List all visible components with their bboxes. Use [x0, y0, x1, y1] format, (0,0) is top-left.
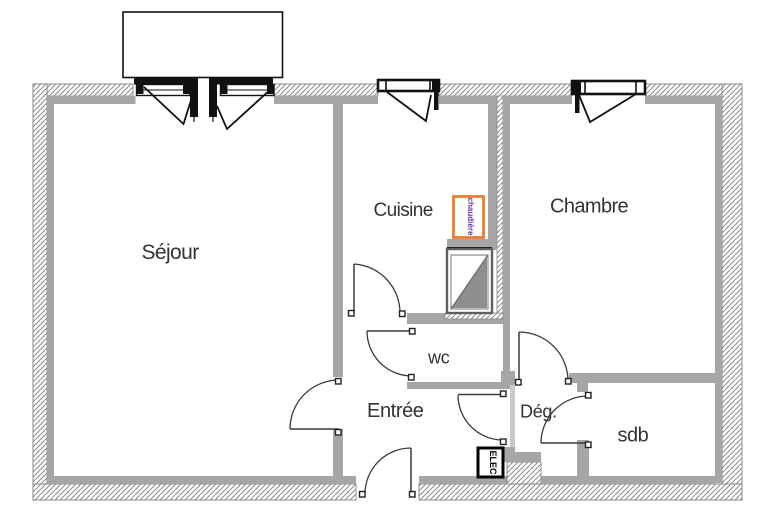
svg-text:wc: wc	[427, 348, 450, 368]
svg-text:sdb: sdb	[618, 425, 649, 447]
svg-text:chaudière: chaudière	[466, 198, 475, 236]
svg-text:Séjour: Séjour	[142, 241, 200, 264]
svg-text:Entrée: Entrée	[367, 400, 424, 422]
svg-text:ELEC: ELEC	[488, 450, 498, 475]
svg-text:Cuisine: Cuisine	[374, 200, 433, 221]
svg-text:Chambre: Chambre	[550, 196, 629, 218]
svg-text:Dég.: Dég.	[520, 402, 557, 422]
